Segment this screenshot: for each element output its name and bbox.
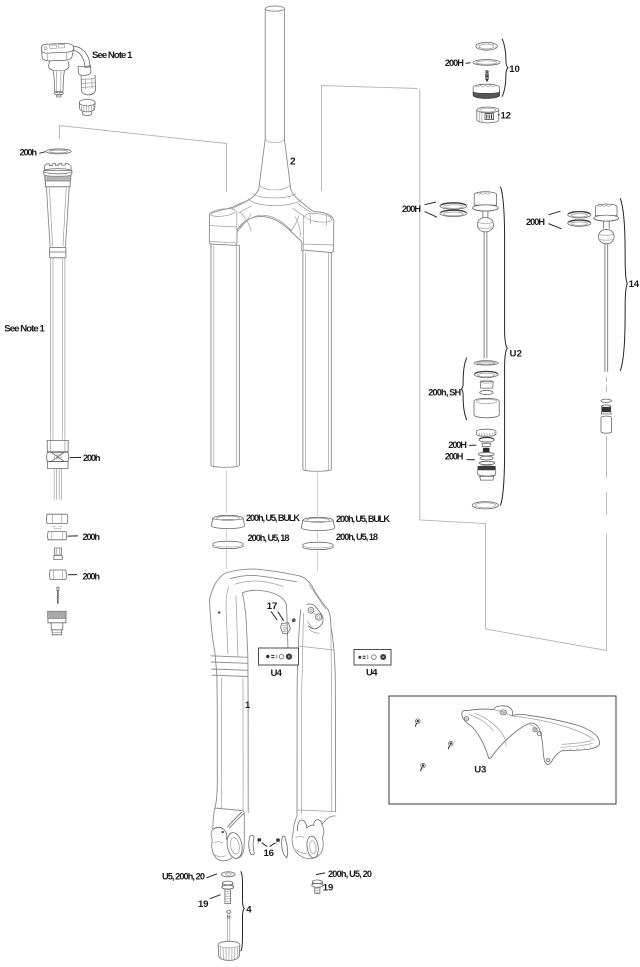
svg-text:200h, U5, 18: 200h, U5, 18 bbox=[336, 532, 378, 542]
svg-text:200h, U5, BULK: 200h, U5, BULK bbox=[246, 513, 300, 523]
svg-text:200h: 200h bbox=[83, 571, 101, 581]
svg-text:200H: 200H bbox=[402, 204, 421, 214]
svg-text:19: 19 bbox=[323, 882, 334, 893]
svg-text:4: 4 bbox=[246, 904, 252, 915]
svg-text:200H: 200H bbox=[445, 451, 464, 461]
svg-text:16: 16 bbox=[264, 848, 275, 859]
svg-text:200h, SH: 200h, SH bbox=[428, 388, 461, 398]
svg-text:See Note 1: See Note 1 bbox=[4, 323, 45, 334]
svg-text:U2: U2 bbox=[510, 349, 523, 360]
svg-text:200H: 200H bbox=[526, 217, 545, 227]
svg-text:U3: U3 bbox=[474, 765, 486, 776]
svg-text:See Note 1: See Note 1 bbox=[92, 50, 133, 61]
svg-text:U4: U4 bbox=[271, 668, 283, 679]
svg-text:200H: 200H bbox=[445, 58, 464, 68]
svg-text:200h: 200h bbox=[83, 532, 101, 542]
svg-text:U5, 200h, 20: U5, 200h, 20 bbox=[162, 871, 205, 881]
svg-text:200h: 200h bbox=[83, 453, 101, 463]
svg-text:200h, U5, 18: 200h, U5, 18 bbox=[248, 533, 290, 543]
svg-text:U4: U4 bbox=[366, 667, 378, 678]
svg-text:14: 14 bbox=[629, 279, 640, 290]
svg-text:200h, U5, BULK: 200h, U5, BULK bbox=[336, 514, 390, 524]
svg-text:12: 12 bbox=[501, 111, 512, 122]
svg-text:200h, U5, 20: 200h, U5, 20 bbox=[328, 869, 372, 879]
svg-text:1: 1 bbox=[245, 700, 251, 711]
svg-text:200H: 200H bbox=[448, 440, 467, 450]
svg-text:19: 19 bbox=[198, 899, 209, 910]
svg-text:17: 17 bbox=[267, 601, 278, 612]
svg-text:200h: 200h bbox=[20, 148, 38, 158]
svg-text:2: 2 bbox=[290, 156, 296, 167]
svg-text:10: 10 bbox=[509, 64, 520, 75]
